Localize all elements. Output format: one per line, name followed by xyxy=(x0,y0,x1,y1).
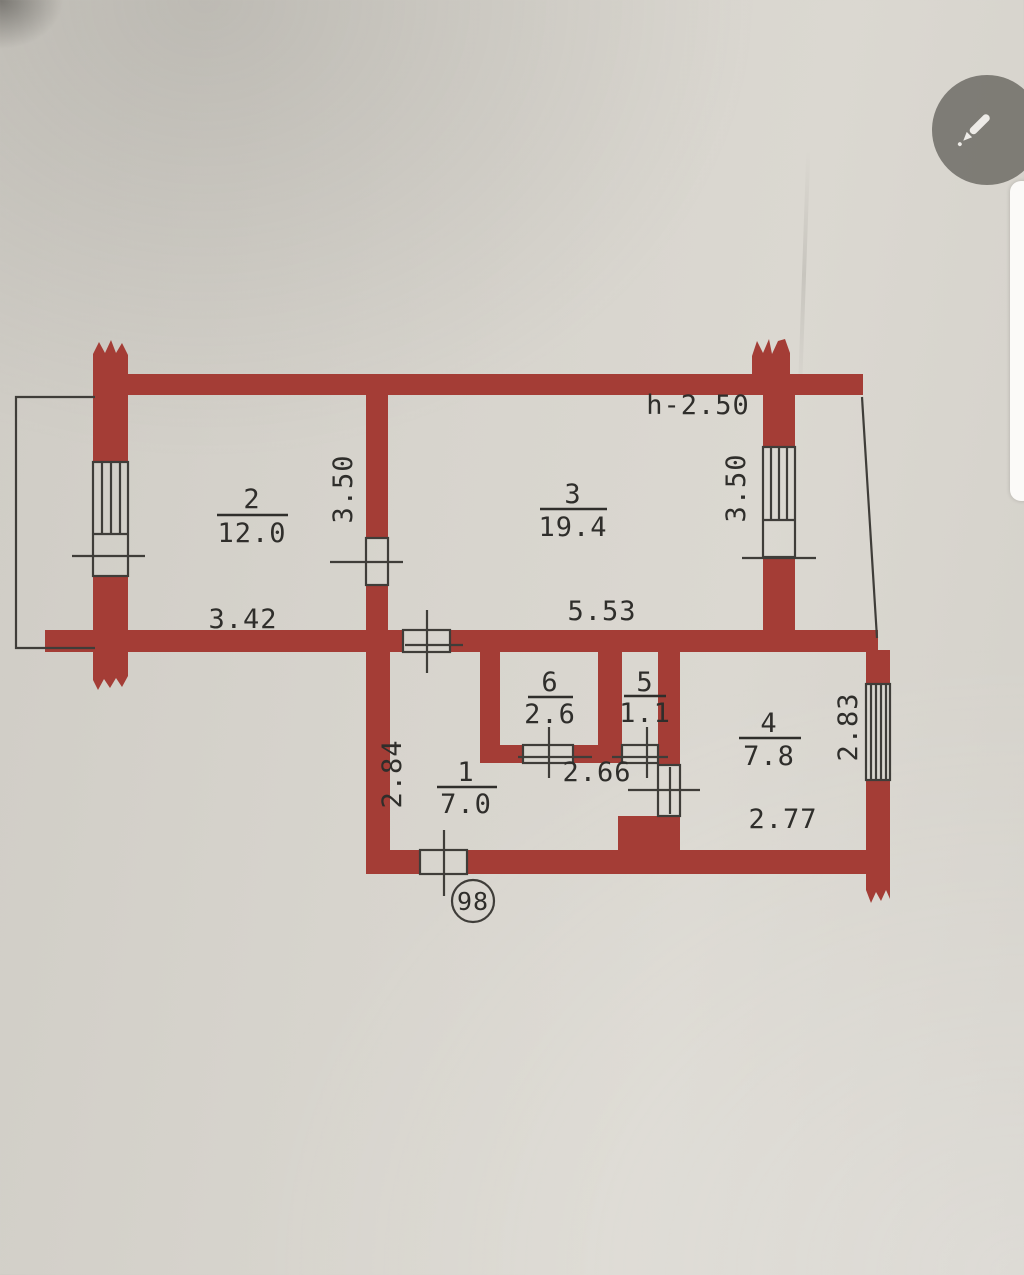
window-room4 xyxy=(866,684,890,780)
balcony-outline xyxy=(16,397,95,648)
wall-segment xyxy=(93,390,128,462)
pencil-icon xyxy=(948,104,1000,156)
door-room4 xyxy=(628,765,700,816)
room-3-number: 3 xyxy=(564,479,581,510)
wall-segment-bottom xyxy=(366,850,420,874)
dim-room4-width: 2.77 xyxy=(748,804,817,835)
wall-segment-bottom xyxy=(467,850,890,874)
wall-break-top-left xyxy=(93,340,128,378)
wall-break-bottom-left xyxy=(93,650,128,690)
loggia-edge xyxy=(862,397,877,638)
dim-room2-depth: 3.50 xyxy=(328,454,359,523)
apartment-number-badge: 98 xyxy=(452,880,494,922)
wall-segment-room4-right xyxy=(866,780,890,874)
room-4-area: 7.8 xyxy=(743,741,795,772)
room-6-area: 2.6 xyxy=(524,699,576,730)
door-rooms-2-3 xyxy=(330,538,403,585)
wall-break-top-right xyxy=(752,339,790,378)
room-5-area: 1.1 xyxy=(619,698,671,729)
wall-segment-partition-2-3 xyxy=(366,585,388,632)
room-2-number: 2 xyxy=(243,484,260,515)
room-4-number: 4 xyxy=(760,708,777,739)
wall-segment-mid xyxy=(450,630,878,652)
dim-room4-depth: 2.83 xyxy=(833,692,864,761)
wall-segment-room3-right xyxy=(763,392,795,447)
room-2-area: 12.0 xyxy=(217,518,286,549)
window-room2 xyxy=(72,462,145,576)
wall-segment-room6-bottom xyxy=(480,745,523,763)
room-5-number: 5 xyxy=(636,667,653,698)
wall-break-bottom-right xyxy=(866,872,890,903)
apartment-number: 98 xyxy=(457,887,489,916)
wall-segment-room4-right xyxy=(866,650,890,684)
dim-inner-width: 2.66 xyxy=(562,757,631,788)
dim-room3-depth: 3.50 xyxy=(721,453,752,522)
wall-segment-room3-right xyxy=(763,557,795,632)
window-room3 xyxy=(742,447,816,558)
dim-room3-width: 5.53 xyxy=(567,596,636,627)
dim-room2-width: 3.42 xyxy=(208,604,277,635)
room-1-number: 1 xyxy=(457,757,474,788)
ceiling-height-note: h-2.50 xyxy=(646,390,750,421)
dim-hall-depth: 2.84 xyxy=(377,739,408,808)
floor-plan-drawing: h-2.50 2 12.0 3 19.4 1 7.0 4 7.8 5 1.1 6… xyxy=(0,0,1024,1275)
room-1-area: 7.0 xyxy=(440,789,492,820)
wall-step-block xyxy=(618,816,680,852)
scrollbar-thumb[interactable] xyxy=(1010,181,1024,501)
room-3-area: 19.4 xyxy=(538,512,607,543)
room-6-number: 6 xyxy=(541,667,558,698)
wall-segment-partition-2-3 xyxy=(366,392,388,538)
